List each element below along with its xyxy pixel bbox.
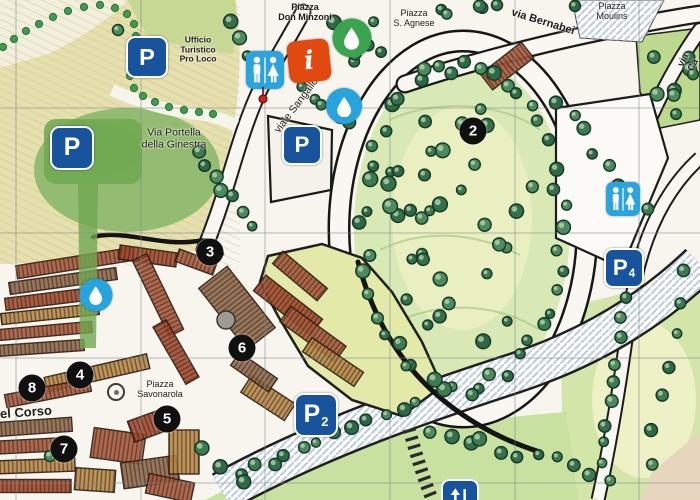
- elevator-arrows-icon: [446, 484, 473, 500]
- info-icon: i: [303, 46, 316, 77]
- numbered-marker-5[interactable]: 5: [154, 406, 181, 433]
- tourist-info[interactable]: i: [286, 38, 332, 84]
- parking-sangallo[interactable]: P: [282, 125, 322, 165]
- restrooms-east[interactable]: [606, 182, 640, 216]
- parking-4[interactable]: P4: [604, 248, 644, 288]
- numbered-marker-8[interactable]: 8: [19, 375, 46, 402]
- man-woman-icon: [606, 182, 640, 216]
- fountain-don-minzoni[interactable]: [333, 19, 372, 58]
- numbered-marker-6[interactable]: 6: [229, 335, 256, 362]
- parking-sub-number: 4: [629, 267, 635, 280]
- elevator[interactable]: [441, 479, 479, 500]
- water-drop-icon: [86, 285, 106, 305]
- parking-sub-number: 2: [321, 414, 328, 429]
- parking-ginestra[interactable]: P: [50, 126, 94, 170]
- restrooms-pro-loco[interactable]: [246, 51, 284, 89]
- water-drop-icon: [340, 26, 364, 50]
- fountain-sangallo[interactable]: [326, 88, 362, 124]
- tourist-map: Piazza Don MinzoniUfficio Turistico Pro …: [0, 0, 700, 500]
- numbered-marker-7[interactable]: 7: [51, 436, 78, 463]
- fountain-old-town[interactable]: [80, 279, 113, 312]
- man-woman-icon: [246, 51, 284, 89]
- water-drop-icon: [333, 95, 355, 117]
- numbered-marker-2[interactable]: 2: [460, 118, 487, 145]
- parking-pro-loco[interactable]: P: [126, 36, 168, 78]
- numbered-marker-4[interactable]: 4: [67, 362, 94, 389]
- map-artwork: [0, 0, 700, 500]
- parking-2[interactable]: P2: [294, 393, 338, 437]
- monument-dot[interactable]: [107, 383, 125, 401]
- numbered-marker-3[interactable]: 3: [197, 239, 224, 266]
